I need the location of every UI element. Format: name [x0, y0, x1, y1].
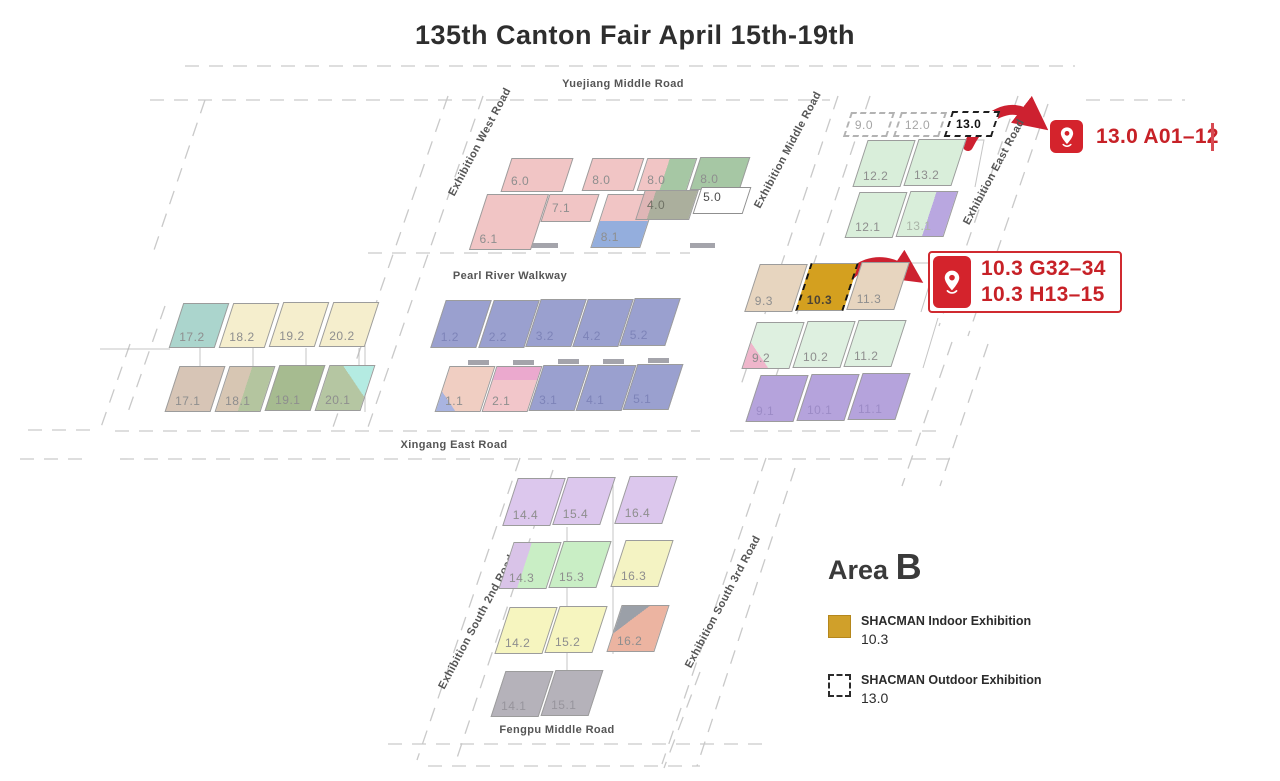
hall-label-15.1: 15.1	[551, 698, 576, 712]
hall-label-12.1: 12.1	[855, 220, 880, 234]
hall-label-14.4: 14.4	[513, 508, 538, 522]
hall-label-12.0: 12.0	[905, 118, 930, 132]
hall-label-8.1: 8.1	[601, 230, 619, 244]
hall-label-15.4: 15.4	[563, 507, 588, 521]
hall-label-16.4: 16.4	[625, 506, 650, 520]
marker-label-10-3-h: 10.3 H13–15	[981, 282, 1106, 308]
hall-7.1: 7.1	[540, 194, 599, 222]
hall-label-10.2: 10.2	[803, 350, 828, 364]
hall-5.0: 5.0	[693, 187, 752, 214]
hall-label-10.1: 10.1	[807, 403, 832, 417]
hall-label-9.3: 9.3	[755, 294, 773, 308]
legend-area-word: Area	[828, 555, 888, 585]
hall-label-5.0: 5.0	[703, 190, 721, 204]
hall-label-11.3: 11.3	[857, 292, 881, 306]
outdoor-swatch-icon	[828, 674, 851, 697]
hall-label-13.1: 13.1	[906, 219, 931, 233]
indoor-swatch-icon	[828, 615, 851, 638]
hall-label-19.2: 19.2	[279, 329, 304, 343]
legend: Area B SHACMAN Indoor Exhibition 10.3 SH…	[828, 546, 1042, 706]
road-label-fengpu-middle-road: Fengpu Middle Road	[499, 724, 614, 736]
hall-label-5.2: 5.2	[630, 328, 648, 342]
hall-label-16.2: 16.2	[617, 634, 642, 648]
hall-label-2.2: 2.2	[489, 330, 507, 344]
hall-label-16.3: 16.3	[621, 569, 646, 583]
hall-label-9.0: 9.0	[855, 118, 873, 132]
legend-item-indoor: SHACMAN Indoor Exhibition 10.3	[828, 614, 1042, 647]
hall-label-17.1: 17.1	[175, 394, 200, 408]
hall-label-8.0: 8.0	[592, 173, 610, 187]
hall-label-13.2: 13.2	[914, 168, 939, 182]
legend-item-outdoor: SHACMAN Outdoor Exhibition 13.0	[828, 673, 1042, 706]
hall-label-19.1: 19.1	[275, 393, 300, 407]
hall-label-5.1: 5.1	[633, 392, 651, 406]
hall-label-1.2: 1.2	[441, 330, 459, 344]
hall-label-11.1: 11.1	[858, 402, 882, 416]
hall-label-9.2: 9.2	[752, 351, 770, 365]
road-label-pearl-river-walkway: Pearl River Walkway	[453, 270, 567, 282]
legend-indoor-value: 10.3	[861, 631, 1031, 647]
hall-label-18.1: 18.1	[225, 394, 250, 408]
hall-label-12.2: 12.2	[863, 169, 888, 183]
location-pin-icon	[1050, 120, 1083, 153]
marker-label-10-3-g: 10.3 G32–34	[981, 256, 1106, 282]
hall-label-4.1: 4.1	[586, 393, 604, 407]
canton-fair-map: 135th Canton Fair April 15th-19th	[0, 0, 1280, 781]
hall-label-15.3: 15.3	[559, 570, 584, 584]
marker-outdoor-13-0: 13.0 A01–12	[1050, 120, 1219, 153]
hall-label-3.1: 3.1	[539, 393, 557, 407]
legend-title: Area B	[828, 546, 1042, 588]
legend-outdoor-value: 13.0	[861, 690, 1042, 706]
hall-label-20.2: 20.2	[329, 329, 354, 343]
hall-9.0: 9.0	[843, 112, 895, 137]
hall-label-15.2: 15.2	[555, 635, 580, 649]
hall-label-10.3: 10.3	[807, 293, 832, 307]
hall-label-17.2: 17.2	[179, 330, 204, 344]
hall-label-14.2: 14.2	[505, 636, 530, 650]
legend-outdoor-title: SHACMAN Outdoor Exhibition	[861, 673, 1042, 687]
hall-label-6.1: 6.1	[479, 232, 497, 246]
hall-8.0: 8.0	[582, 158, 645, 191]
hall-label-4.2: 4.2	[583, 329, 601, 343]
road-label-xingang-east-road: Xingang East Road	[400, 439, 507, 451]
hall-label-20.1: 20.1	[325, 393, 350, 407]
hall-4.0: 4.0	[635, 190, 699, 220]
road-label-yuejiang-middle-road: Yuejiang Middle Road	[562, 78, 684, 90]
marker-label-13-0: 13.0 A01–12	[1096, 125, 1219, 149]
hall-label-1.1: 1.1	[445, 394, 463, 408]
hall-label-14.3: 14.3	[509, 571, 534, 585]
hall-label-18.2: 18.2	[229, 330, 254, 344]
hall-label-11.2: 11.2	[854, 349, 878, 363]
legend-indoor-title: SHACMAN Indoor Exhibition	[861, 614, 1031, 628]
legend-area-letter: B	[896, 546, 922, 587]
hall-label-9.1: 9.1	[756, 404, 774, 418]
hall-label-14.1: 14.1	[501, 699, 526, 713]
hall-6.0: 6.0	[500, 158, 573, 192]
hall-label-4.0: 4.0	[647, 198, 665, 212]
hall-label-3.2: 3.2	[536, 329, 554, 343]
hall-label-2.1: 2.1	[492, 394, 510, 408]
hall-label-13.0: 13.0	[956, 117, 981, 131]
hall-12.0: 12.0	[893, 112, 947, 137]
hall-label-8.0: 8.0	[700, 172, 718, 186]
hall-label-7.1: 7.1	[552, 201, 570, 215]
hall-13.0: 13.0	[944, 111, 1000, 137]
red-caret-mark	[1211, 123, 1214, 151]
marker-indoor-10-3: 10.3 G32–34 10.3 H13–15	[928, 251, 1122, 313]
location-pin-icon	[933, 256, 971, 308]
hall-label-6.0: 6.0	[511, 174, 529, 188]
hall-label-8.0: 8.0	[647, 173, 665, 187]
